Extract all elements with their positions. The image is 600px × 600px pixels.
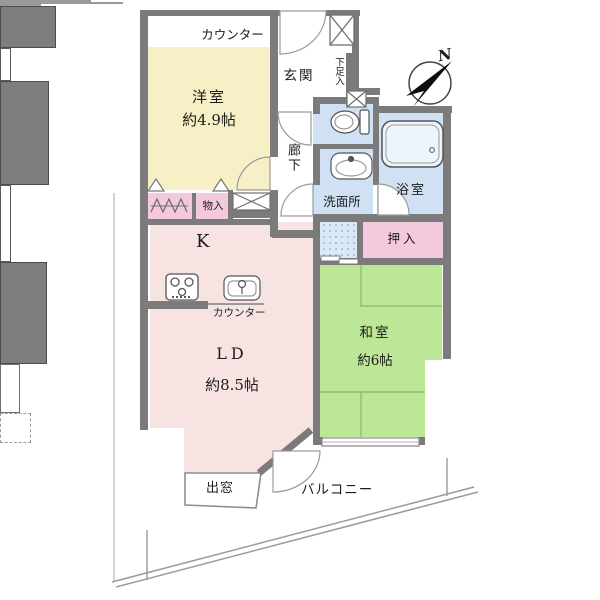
- label-western-room-name: 洋室: [148, 86, 270, 107]
- wall-oshiire-bottom: [313, 258, 450, 265]
- label-oshiire: 押入: [363, 228, 443, 247]
- room-bathroom: [377, 113, 445, 216]
- wall-under-ps: [232, 210, 273, 218]
- label-kitchen: K: [196, 231, 209, 252]
- label-japanese-size: 約6帖: [340, 349, 410, 369]
- label-hallway: 廊下: [283, 143, 302, 173]
- window-slit-top-left: [0, 48, 11, 81]
- pillar-bottom-left: [0, 81, 49, 185]
- wall-right-exterior: [443, 106, 451, 359]
- wall-washroom-left-upper: [313, 144, 320, 185]
- wall-top-left: [140, 10, 280, 16]
- wall-left-exterior: [140, 10, 148, 430]
- wall-shoebox-right: [346, 53, 353, 106]
- room-kitchen-living-upper: [150, 222, 313, 428]
- label-entrance: 玄関: [276, 64, 322, 84]
- floor-plan: カウンター 洋室 約4.9帖 玄関 下足入 廊下 洗面所 浴室 押入 物入 K …: [0, 0, 600, 600]
- wall-bath-top: [373, 106, 452, 113]
- pipe-space-icon-2: [233, 193, 270, 210]
- pillar-top-left: [0, 6, 56, 48]
- label-kitchen-counter: カウンター: [213, 305, 266, 320]
- balcony-rail-line-2: [116, 492, 478, 587]
- door-arc-entrance: [280, 11, 326, 54]
- balcony-rail-line-1: [112, 487, 474, 582]
- label-living-size: 約8.5帖: [182, 374, 282, 395]
- door-arc-washroom: [281, 184, 313, 216]
- door-arc-toilet: [278, 112, 311, 145]
- label-bay-window: 出窓: [190, 477, 250, 496]
- refrigerator-space: [0, 413, 31, 443]
- label-japanese-name: 和室: [340, 321, 410, 341]
- wall-entry-step: [352, 88, 380, 95]
- wall-japanese-bottom-left: [313, 437, 323, 445]
- label-bathroom: 浴室: [377, 179, 445, 198]
- label-balcony: バルコニー: [301, 478, 373, 498]
- wall-toilet-left-upper: [313, 104, 320, 114]
- wall-wet-bottom: [313, 214, 451, 222]
- label-western-room-size: 約4.9帖: [148, 109, 270, 130]
- room-hanger-closet: [148, 193, 192, 219]
- room-toilet: [313, 103, 373, 147]
- meter-box-icon: [330, 15, 354, 45]
- window-japanese-balcony: [322, 438, 419, 446]
- compass-north-label: N: [436, 45, 453, 65]
- wall-japanese-bottom-right: [418, 437, 425, 445]
- label-storage: 物入: [196, 198, 230, 213]
- label-living-name: LD: [182, 344, 282, 363]
- pillar-bottom-right: [0, 262, 47, 364]
- label-shoe-box: 下足入: [331, 57, 345, 86]
- room-laundry-space: [315, 222, 357, 258]
- label-washroom: 洗面所: [311, 191, 373, 210]
- shoe-box: [0, 364, 20, 413]
- wall-entry-right: [352, 13, 359, 93]
- wall-toilet-washroom-divider: [313, 144, 379, 149]
- wall-mid-vertical: [313, 216, 320, 438]
- compass-icon: [406, 61, 452, 107]
- window-slit-bottom-left: [0, 185, 11, 262]
- wall-closet-bottom: [148, 219, 272, 225]
- label-counter-top: カウンター: [187, 24, 278, 43]
